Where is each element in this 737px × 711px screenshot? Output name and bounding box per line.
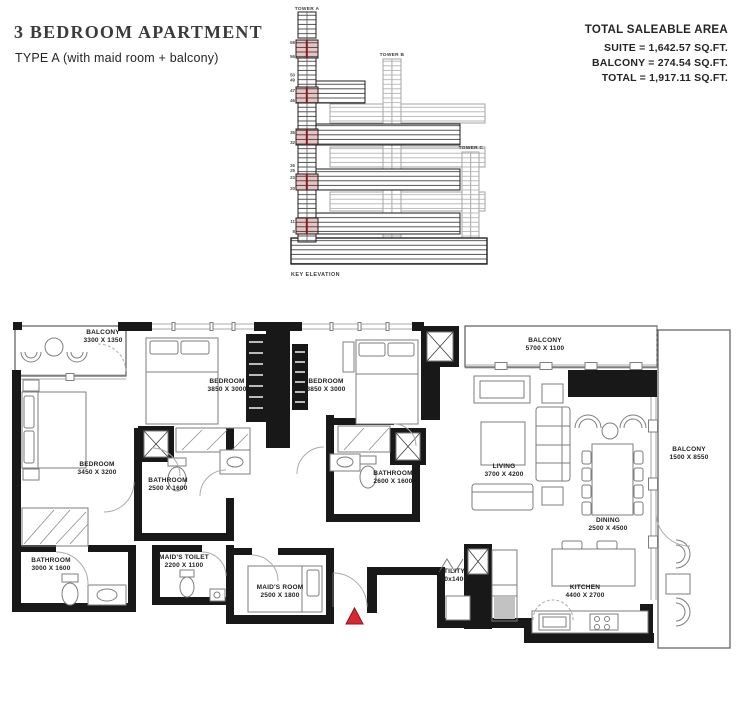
area-summary: TOTAL SALEABLE AREA SUITE = 1,642.57 SQ.… <box>585 24 728 86</box>
area-suite: SUITE = 1,642.57 SQ.FT. <box>585 41 728 56</box>
svg-text:47: 47 <box>290 88 295 93</box>
room-dims: 2500 X 1600 <box>133 485 203 493</box>
room-label-bathroom-2: BATHROOM 2600 X 1600 <box>356 470 430 486</box>
room-label-dining: DINING 2500 X 4500 <box>571 517 645 533</box>
room-name: BALCONY <box>63 329 143 337</box>
room-name: UTILITY <box>417 568 487 576</box>
tower-c-label: TOWER C <box>459 145 484 151</box>
room-label-bedroom-right: BEDROOM 3850 X 3000 <box>289 378 363 394</box>
room-dims: 2500 X 4500 <box>571 525 645 533</box>
room-label-balcony-top: BALCONY 5700 X 1100 <box>508 337 582 353</box>
room-name: MAID'S ROOM <box>243 584 317 592</box>
room-name: DINING <box>571 517 645 525</box>
room-dims: 3700 X 4200 <box>467 471 541 479</box>
entry-marker <box>346 608 363 624</box>
area-summary-heading: TOTAL SALEABLE AREA <box>585 24 728 36</box>
room-dims: 4400 X 2700 <box>548 592 622 600</box>
svg-text:46: 46 <box>290 98 295 103</box>
room-dims: 3300 X 1350 <box>63 337 143 345</box>
room-label-balcony-tl: BALCONY 3300 X 1350 <box>63 329 143 345</box>
svg-text:35: 35 <box>290 130 295 135</box>
room-name: LIVING <box>467 463 541 471</box>
room-dims: 1500 X 8550 <box>653 454 725 462</box>
room-name: KITCHEN <box>548 584 622 592</box>
svg-text:23: 23 <box>290 175 295 180</box>
svg-text:8: 8 <box>293 229 296 234</box>
room-label-utility: UTILITY 900x1400 <box>417 568 487 584</box>
tower-a-column <box>296 12 318 242</box>
key-elevation-diagram: 58 56 50 49 47 46 35 32 26 25 23 20 11 8… <box>275 2 507 284</box>
svg-text:25: 25 <box>290 168 295 173</box>
room-dims: 3450 X 3200 <box>60 469 134 477</box>
floor-numbers: 58 56 50 49 47 46 35 32 26 25 23 20 11 8 <box>290 40 295 234</box>
floor-plan-drawing <box>0 320 737 711</box>
floorplan-page: 3 BEDROOM APARTMENT TYPE A (with maid ro… <box>0 0 737 711</box>
room-dims: 3850 X 3000 <box>289 386 363 394</box>
svg-text:20: 20 <box>290 186 295 191</box>
room-label-bathroom-3: BATHROOM 3000 X 1600 <box>16 557 86 573</box>
room-dims: 2600 X 1600 <box>356 478 430 486</box>
area-total: TOTAL = 1,917.11 SQ.FT. <box>585 71 728 86</box>
svg-text:49: 49 <box>290 78 295 83</box>
area-balcony: BALCONY = 274.54 SQ.FT. <box>585 56 728 71</box>
svg-text:56: 56 <box>290 54 295 59</box>
room-name: BALCONY <box>508 337 582 345</box>
page-subtitle: TYPE A (with maid room + balcony) <box>15 51 219 65</box>
room-label-balcony-right: BALCONY 1500 X 8550 <box>653 446 725 462</box>
svg-text:58: 58 <box>290 40 295 45</box>
svg-text:32: 32 <box>290 140 295 145</box>
room-label-living: LIVING 3700 X 4200 <box>467 463 541 479</box>
room-label-bedroom-mid: BEDROOM 3850 X 3000 <box>190 378 264 394</box>
room-name: BALCONY <box>653 446 725 454</box>
room-dims: 900x1400 <box>417 576 487 584</box>
room-label-kitchen: KITCHEN 4400 X 2700 <box>548 584 622 600</box>
room-label-bedroom-left: BEDROOM 3450 X 3200 <box>60 461 134 477</box>
tower-b-label: TOWER B <box>380 52 405 58</box>
room-name: BATHROOM <box>16 557 86 565</box>
room-dims: 5700 X 1100 <box>508 345 582 353</box>
room-dims: 3000 X 1600 <box>16 565 86 573</box>
room-name: BEDROOM <box>60 461 134 469</box>
room-name: MAID'S TOILET <box>146 554 222 562</box>
room-name: BATHROOM <box>356 470 430 478</box>
room-name: BEDROOM <box>289 378 363 386</box>
room-dims: 2200 X 1100 <box>146 562 222 570</box>
room-label-maids-room: MAID'S ROOM 2500 X 1800 <box>243 584 317 600</box>
room-label-bathroom-1: BATHROOM 2500 X 1600 <box>133 477 203 493</box>
room-name: BATHROOM <box>133 477 203 485</box>
key-elevation-caption: KEY ELEVATION <box>291 272 340 278</box>
page-title: 3 BEDROOM APARTMENT <box>14 22 263 43</box>
room-label-maids-toilet: MAID'S TOILET 2200 X 1100 <box>146 554 222 570</box>
room-name: BEDROOM <box>190 378 264 386</box>
tower-a-label: TOWER A <box>295 6 320 12</box>
svg-text:11: 11 <box>290 219 295 224</box>
room-dims: 3850 X 3000 <box>190 386 264 394</box>
room-dims: 2500 X 1800 <box>243 592 317 600</box>
